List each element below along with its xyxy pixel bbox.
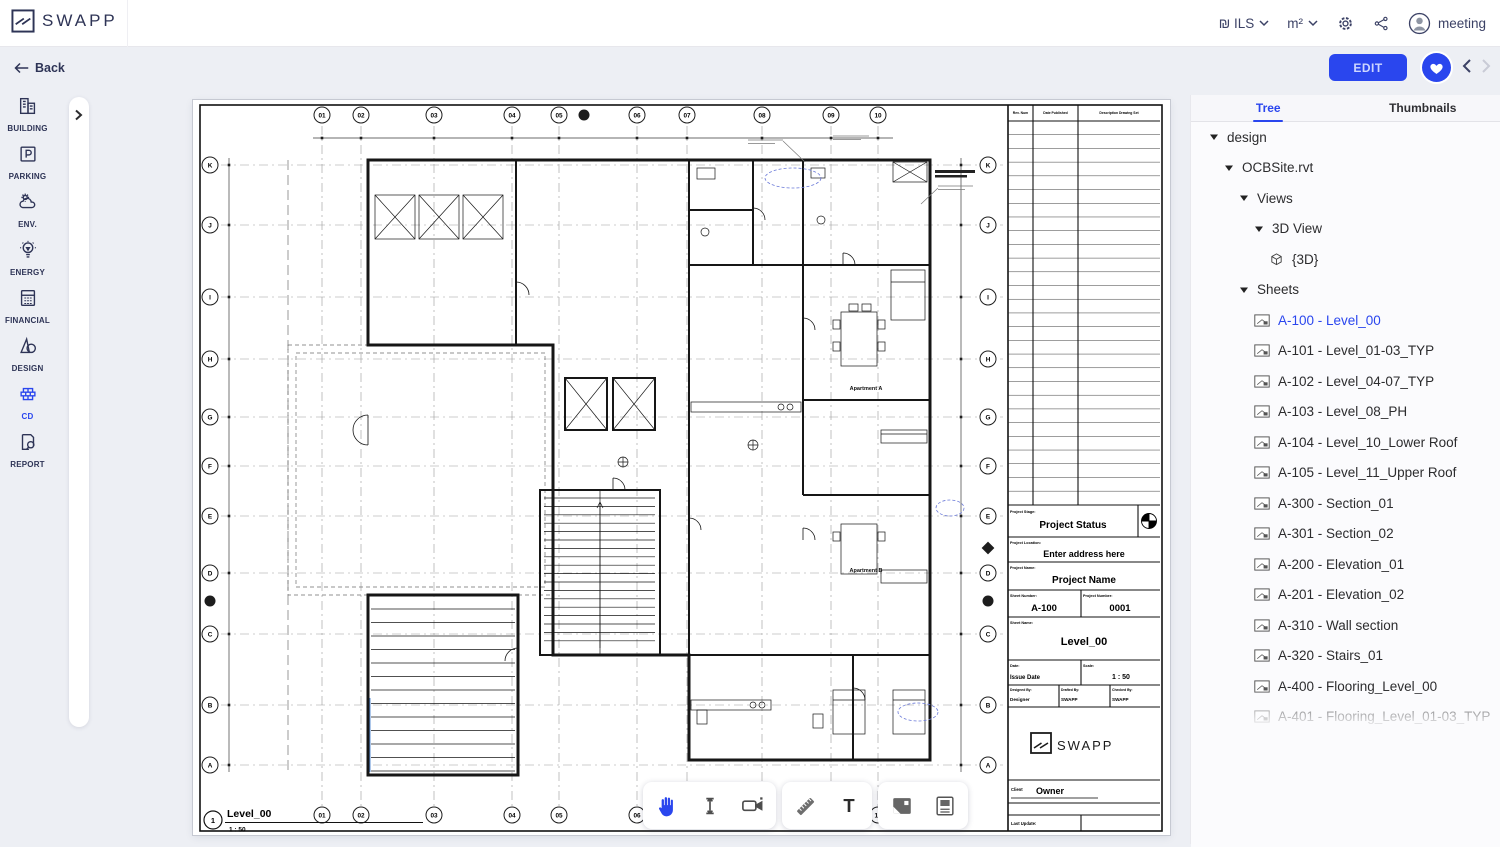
sheet-icon xyxy=(1254,588,1270,601)
sheet-icon xyxy=(1254,497,1270,510)
svg-text:T: T xyxy=(843,795,855,816)
report-icon xyxy=(17,431,39,458)
view-scale: 1 : 50 xyxy=(229,827,246,834)
sheet-a100[interactable]: Apartment A Apartment B 0101020203030404… xyxy=(193,100,1170,835)
apartment-a-label: Apartment A xyxy=(850,386,883,392)
svg-text:J: J xyxy=(986,222,990,229)
tree-item-ocbsite-rvt[interactable]: OCBSite.rvt xyxy=(1191,153,1500,184)
chevron-down-icon xyxy=(1308,20,1318,27)
caret-down-icon[interactable] xyxy=(1239,194,1249,202)
scale-value: 1 : 50 xyxy=(1112,674,1130,681)
sheet-number-value: A-100 xyxy=(1031,603,1057,614)
sheet-icon xyxy=(1254,436,1270,449)
svg-text:B: B xyxy=(986,702,991,709)
svg-text:Sheet Number:: Sheet Number: xyxy=(1010,594,1037,598)
svg-text:Project Name:: Project Name: xyxy=(1010,566,1036,570)
svg-text:06: 06 xyxy=(633,812,641,819)
project-location-value: Enter address here xyxy=(1043,549,1125,559)
previous-sheet-button[interactable] xyxy=(1462,58,1472,79)
svg-text:08: 08 xyxy=(758,112,766,119)
share-icon xyxy=(1373,15,1390,32)
svg-text:D: D xyxy=(986,570,991,577)
design-icon xyxy=(17,335,39,362)
svg-text:01: 01 xyxy=(318,112,326,119)
north-symbol xyxy=(1142,514,1157,529)
toolbar-group-2: T xyxy=(782,782,872,829)
swapp-logo[interactable]: SWAPP xyxy=(10,8,118,34)
tree-item-design[interactable]: design xyxy=(1191,122,1500,153)
tree-item-a-103-level-08-ph[interactable]: A-103 - Level_08_PH xyxy=(1191,397,1500,428)
sidebar-item-parking[interactable]: PARKING xyxy=(0,138,55,186)
svg-text:Project Stage:: Project Stage: xyxy=(1010,510,1036,514)
arrow-left-icon xyxy=(14,62,29,74)
vertical-measure-tool[interactable] xyxy=(688,784,731,827)
sheet-icon xyxy=(1254,649,1270,662)
svg-text:Date Published: Date Published xyxy=(1043,111,1068,115)
sub-header: Back EDIT xyxy=(0,47,1500,95)
3d-cube-icon xyxy=(1269,252,1284,267)
svg-text:Client: Client xyxy=(1011,787,1023,792)
sidebar-item-energy[interactable]: ENERGY xyxy=(0,234,55,282)
tree-item-a-101-level-01-03-typ[interactable]: A-101 - Level_01-03_TYP xyxy=(1191,336,1500,367)
svg-text:01: 01 xyxy=(318,812,326,819)
svg-text:Project Location:: Project Location: xyxy=(1010,541,1041,545)
svg-text:04: 04 xyxy=(508,112,516,119)
expand-panel-button[interactable] xyxy=(74,109,83,121)
svg-text:03: 03 xyxy=(430,812,438,819)
svg-text:Scale:: Scale: xyxy=(1083,664,1094,668)
svg-text:07: 07 xyxy=(683,112,691,119)
tree-item-a-105-level-11-upper-roof[interactable]: A-105 - Level_11_Upper Roof xyxy=(1191,458,1500,489)
svg-text:Designer: Designer xyxy=(1010,697,1030,702)
measure-ruler-tool[interactable] xyxy=(784,784,827,827)
share-button[interactable] xyxy=(1373,15,1390,32)
svg-text:10: 10 xyxy=(874,112,882,119)
tree-item--3d-[interactable]: {3D} xyxy=(1191,244,1500,275)
sidebar-item-building[interactable]: BUILDING xyxy=(0,90,55,138)
svg-text:F: F xyxy=(208,463,212,470)
floor-plan-drawing: Apartment A Apartment B 0101020203030404… xyxy=(193,100,1170,835)
tab-tree[interactable]: Tree xyxy=(1191,95,1346,121)
caret-down-icon[interactable] xyxy=(1239,286,1249,294)
svg-text:Rev. Num: Rev. Num xyxy=(1013,111,1028,115)
sheet-icon xyxy=(1254,710,1270,723)
gear-icon xyxy=(1336,14,1355,33)
svg-text:Date:: Date: xyxy=(1010,664,1020,668)
sheet-icon xyxy=(1254,375,1270,388)
svg-text:G: G xyxy=(986,414,991,421)
svg-text:C: C xyxy=(208,631,213,638)
swapp-logo-icon xyxy=(10,8,36,34)
svg-text:Project Number:: Project Number: xyxy=(1083,594,1113,598)
next-sheet-button[interactable] xyxy=(1481,58,1491,79)
view-name: Level_00 xyxy=(227,808,272,820)
svg-text:Issue Date: Issue Date xyxy=(1010,675,1041,681)
toolbar-group-1 xyxy=(643,782,776,829)
svg-text:C: C xyxy=(986,631,991,638)
cd-icon xyxy=(17,383,39,410)
svg-text:F: F xyxy=(986,463,990,470)
back-label: Back xyxy=(35,61,65,75)
tab-thumbnails[interactable]: Thumbnails xyxy=(1346,95,1500,121)
template-icon xyxy=(933,794,957,818)
svg-text:Last Update:: Last Update: xyxy=(1011,821,1036,826)
apartment-b-label: Apartment B xyxy=(849,568,882,574)
caret-down-icon[interactable] xyxy=(1254,225,1264,233)
toolbar-group-3 xyxy=(878,782,968,829)
tree-item-a-100-level-00[interactable]: A-100 - Level_00 xyxy=(1191,305,1500,336)
project-stage-value: Project Status xyxy=(1039,520,1107,531)
panel-tabs: Tree Thumbnails xyxy=(1191,95,1500,122)
sheet-icon xyxy=(1254,314,1270,327)
sheet-template-tool[interactable] xyxy=(923,784,966,827)
user-menu[interactable]: meeting xyxy=(1408,12,1486,35)
edit-button[interactable]: EDIT xyxy=(1329,54,1407,81)
svg-text:04: 04 xyxy=(508,812,516,819)
tree-item-a-400-flooring-level-00[interactable]: A-400 - Flooring_Level_00 xyxy=(1191,671,1500,702)
sheet-icon xyxy=(1254,741,1270,754)
svg-text:I: I xyxy=(987,294,989,301)
sheet-browser-panel: Tree Thumbnails designOCBSite.rvtViews3D… xyxy=(1190,95,1500,844)
svg-text:E: E xyxy=(208,513,213,520)
svg-text:05: 05 xyxy=(555,112,563,119)
sidebar-item-financial[interactable]: FINANCIAL xyxy=(0,282,55,330)
svg-text:SWAPP: SWAPP xyxy=(1061,697,1078,702)
svg-text:SWAPP: SWAPP xyxy=(1112,697,1129,702)
sheet-icon xyxy=(1254,527,1270,540)
svg-text:A: A xyxy=(208,762,213,769)
sheet-tree: designOCBSite.rvtViews3D View{3D}SheetsA… xyxy=(1191,122,1500,793)
parking-icon xyxy=(17,143,39,170)
tree-item-3d-view[interactable]: 3D View xyxy=(1191,214,1500,245)
sheet-icon xyxy=(1254,771,1270,784)
svg-text:1: 1 xyxy=(211,816,215,825)
tree-item-a-401-flooring-level-01-03-typ[interactable]: A-401 - Flooring_Level_01-03_TYP xyxy=(1191,702,1500,733)
settings-button[interactable] xyxy=(1336,14,1355,33)
svg-text:G: G xyxy=(208,414,213,421)
drawing-toolbar: T xyxy=(643,782,968,829)
tree-item-a-102-level-04-07-typ[interactable]: A-102 - Level_04-07_TYP xyxy=(1191,366,1500,397)
measurev-icon xyxy=(698,794,722,818)
tree-item-a-402-flooring-level-04-07-typ[interactable]: A-402 - Flooring_Level_04-07_TYP xyxy=(1191,732,1500,763)
building-icon xyxy=(17,95,39,122)
caret-down-icon[interactable] xyxy=(1209,133,1219,141)
tree-item-a-200-elevation-01[interactable]: A-200 - Elevation_01 xyxy=(1191,549,1500,580)
sidebar-item-design[interactable]: DESIGN xyxy=(0,330,55,378)
sheet-icon xyxy=(1254,680,1270,693)
favorite-button[interactable] xyxy=(1422,53,1451,82)
project-number-value: 0001 xyxy=(1109,603,1131,614)
caret-down-icon[interactable] xyxy=(1224,164,1234,172)
svg-text:03: 03 xyxy=(430,112,438,119)
svg-text:E: E xyxy=(986,513,991,520)
unit-label: m² xyxy=(1287,16,1303,31)
app-header: SWAPP ₪ ILS m² xyxy=(0,0,1500,47)
sheet-icon xyxy=(1254,619,1270,632)
tree-item-a-201-elevation-02[interactable]: A-201 - Elevation_02 xyxy=(1191,580,1500,611)
svg-text:Designed By:: Designed By: xyxy=(1010,688,1032,692)
svg-text:Checked By:: Checked By: xyxy=(1112,688,1133,692)
text-tool[interactable]: T xyxy=(827,784,870,827)
svg-text:02: 02 xyxy=(357,112,365,119)
svg-text:B: B xyxy=(208,702,213,709)
svg-text:K: K xyxy=(208,162,213,169)
divider xyxy=(127,0,128,47)
svg-text:A: A xyxy=(986,762,991,769)
sheet-icon xyxy=(1254,558,1270,571)
svg-text:05: 05 xyxy=(555,812,563,819)
sidebar-item-cd[interactable]: CD xyxy=(0,378,55,426)
currency-label: ₪ ILS xyxy=(1219,16,1254,31)
energy-icon xyxy=(17,239,39,266)
pan-tool[interactable] xyxy=(645,784,688,827)
svg-text:I: I xyxy=(209,294,211,301)
module-sidebar: BUILDINGPARKINGENV.ENERGYFINANCIALDESIGN… xyxy=(0,90,55,474)
back-button[interactable]: Back xyxy=(14,61,65,75)
pan-icon xyxy=(655,794,679,818)
chevron-down-icon xyxy=(1259,20,1269,27)
tree-item-views[interactable]: Views xyxy=(1191,183,1500,214)
text-icon: T xyxy=(837,794,861,818)
user-name: meeting xyxy=(1438,16,1486,31)
svg-text:Sheet Name:: Sheet Name: xyxy=(1010,621,1033,625)
svg-text:SWAPP: SWAPP xyxy=(1057,738,1113,753)
svg-text:02: 02 xyxy=(357,812,365,819)
image-icon xyxy=(890,794,914,818)
tree-item-a-104-level-10-lower-roof[interactable]: A-104 - Level_10_Lower Roof xyxy=(1191,427,1500,458)
svg-text:06: 06 xyxy=(633,112,641,119)
tree-item-sheets[interactable]: Sheets xyxy=(1191,275,1500,306)
env-icon xyxy=(17,191,39,218)
brand-text: SWAPP xyxy=(42,11,118,31)
project-name-value: Project Name xyxy=(1052,575,1116,586)
image-tool[interactable] xyxy=(880,784,923,827)
sidebar-item-report[interactable]: REPORT xyxy=(0,426,55,474)
svg-text:D: D xyxy=(208,570,213,577)
svg-text:K: K xyxy=(986,162,991,169)
camera-icon xyxy=(740,793,765,818)
currency-select[interactable]: ₪ ILS xyxy=(1219,16,1269,31)
svg-text:Description Drawing Set: Description Drawing Set xyxy=(1099,111,1139,115)
svg-text:09: 09 xyxy=(827,112,835,119)
tree-item-a-301-section-02[interactable]: A-301 - Section_02 xyxy=(1191,519,1500,550)
walkthrough-camera-tool[interactable] xyxy=(731,784,774,827)
svg-text:J: J xyxy=(208,222,212,229)
collapsed-panel xyxy=(69,97,89,727)
svg-text:Drafted By:: Drafted By: xyxy=(1061,688,1079,692)
svg-text:H: H xyxy=(986,356,991,363)
drawing-canvas[interactable]: Apartment A Apartment B 0101020203030404… xyxy=(55,95,1190,844)
client-value: Owner xyxy=(1036,786,1065,796)
tree-item-a-310-wall-section[interactable]: A-310 - Wall section xyxy=(1191,610,1500,641)
sheet-icon xyxy=(1254,344,1270,357)
tree-item-a-320-stairs-01[interactable]: A-320 - Stairs_01 xyxy=(1191,641,1500,672)
avatar xyxy=(1408,12,1431,35)
sidebar-item-env[interactable]: ENV. xyxy=(0,186,55,234)
heart-icon xyxy=(1429,61,1444,75)
ruler-icon xyxy=(793,793,818,818)
unit-select[interactable]: m² xyxy=(1287,16,1318,31)
tree-item-a-300-section-01[interactable]: A-300 - Section_01 xyxy=(1191,488,1500,519)
sheet-icon xyxy=(1254,405,1270,418)
svg-text:H: H xyxy=(208,356,213,363)
tree-item-a-403-flooring-level-08-ph[interactable]: A-403 - Flooring_Level_08_PH xyxy=(1191,763,1500,794)
financial-icon xyxy=(17,287,39,314)
sheet-name-value: Level_00 xyxy=(1061,636,1107,648)
sheet-icon xyxy=(1254,466,1270,479)
